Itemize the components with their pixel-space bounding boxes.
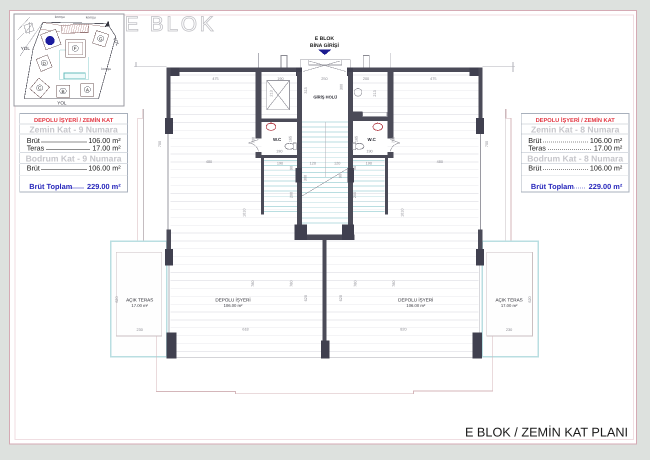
svg-text:17.00 m²: 17.00 m² (594, 144, 623, 153)
svg-text:Bodrum Kat - 8 Numara: Bodrum Kat - 8 Numara (527, 153, 623, 163)
svg-text:E BLOK / ZEMİN KAT PLANI: E BLOK / ZEMİN KAT PLANI (465, 426, 628, 440)
svg-text:250: 250 (321, 77, 327, 81)
svg-text:BİNA GİRİŞİ: BİNA GİRİŞİ (310, 42, 340, 49)
svg-text:165: 165 (288, 136, 292, 142)
svg-text:213: 213 (373, 90, 377, 96)
svg-text:106.00 m²: 106.00 m² (224, 303, 243, 308)
svg-text:AÇIK TERAS: AÇIK TERAS (495, 298, 522, 303)
svg-text:106.00 m²: 106.00 m² (88, 164, 121, 173)
svg-text:Zemin Kat - 9 Numara: Zemin Kat - 9 Numara (29, 124, 118, 134)
svg-text:E BLOK: E BLOK (125, 13, 216, 36)
svg-text:90: 90 (290, 166, 294, 170)
svg-text:230: 230 (506, 328, 512, 332)
svg-text:780: 780 (392, 281, 396, 287)
svg-text:165: 165 (355, 136, 359, 142)
svg-text:475: 475 (430, 77, 436, 81)
svg-text:190: 190 (366, 150, 372, 154)
svg-text:700: 700 (158, 141, 162, 147)
svg-text:120: 120 (310, 162, 316, 166)
svg-text:Brüt Toplam: Brüt Toplam (29, 182, 72, 191)
svg-text:G: G (99, 36, 103, 41)
svg-text:780: 780 (251, 281, 255, 287)
svg-text:120: 120 (334, 162, 340, 166)
svg-text:DEPOLU İŞYERİ: DEPOLU İŞYERİ (398, 298, 433, 303)
svg-text:Zemin Kat - 8 Numara: Zemin Kat - 8 Numara (531, 124, 620, 134)
svg-text:700: 700 (391, 137, 395, 143)
svg-text:106.00 m²: 106.00 m² (590, 164, 623, 173)
svg-text:1010: 1010 (401, 208, 405, 216)
svg-text:190: 190 (277, 77, 283, 81)
svg-text:1010: 1010 (242, 208, 246, 216)
svg-text:200: 200 (290, 192, 294, 198)
svg-text:E BLOK: E BLOK (315, 36, 335, 42)
svg-text:213: 213 (270, 90, 274, 96)
svg-text:200: 200 (363, 77, 369, 81)
svg-text:Teras: Teras (528, 144, 546, 153)
svg-text:DEPOLU İŞYERİ / ZEMİN KAT: DEPOLU İŞYERİ / ZEMİN KAT (536, 117, 616, 124)
svg-text:190: 190 (276, 150, 282, 154)
svg-text:480: 480 (206, 160, 212, 164)
svg-text:230: 230 (137, 328, 143, 332)
svg-text:F: F (74, 46, 77, 51)
svg-text:17.00 m²: 17.00 m² (131, 303, 148, 308)
svg-text:620: 620 (528, 296, 532, 302)
svg-text:313: 313 (304, 87, 308, 93)
svg-text:780: 780 (354, 281, 358, 287)
svg-text:Brüt: Brüt (27, 164, 40, 173)
svg-text:komşu: komşu (55, 15, 65, 19)
svg-text:300: 300 (340, 84, 344, 90)
svg-text:229.00 m²: 229.00 m² (87, 182, 121, 191)
svg-text:90: 90 (353, 166, 357, 170)
svg-text:Teras: Teras (27, 144, 45, 153)
svg-text:480: 480 (437, 160, 443, 164)
svg-text:200: 200 (353, 192, 357, 198)
svg-text:komşu: komşu (86, 16, 96, 20)
svg-text:AÇIK TERAS: AÇIK TERAS (126, 298, 153, 303)
svg-text:90: 90 (339, 174, 343, 178)
svg-text:GİRİŞ HOLÜ: GİRİŞ HOLÜ (313, 95, 337, 100)
svg-text:Bodrum Kat - 9 Numara: Bodrum Kat - 9 Numara (26, 153, 122, 163)
svg-text:17.00 m²: 17.00 m² (501, 303, 518, 308)
svg-text:17.00 m²: 17.00 m² (92, 144, 121, 153)
svg-text:620: 620 (115, 296, 119, 302)
svg-text:DEPOLU İŞYERİ: DEPOLU İŞYERİ (215, 298, 250, 303)
svg-text:300: 300 (304, 175, 308, 181)
svg-text:YOL: YOL (57, 101, 67, 106)
svg-text:Brüt Toplam: Brüt Toplam (531, 182, 574, 191)
svg-text:475: 475 (212, 77, 218, 81)
svg-text:YOL: YOL (21, 46, 31, 51)
svg-text:Brüt: Brüt (528, 164, 541, 173)
svg-text:620: 620 (339, 295, 343, 301)
svg-text:190: 190 (277, 162, 283, 166)
svg-text:618: 618 (242, 328, 248, 332)
svg-text:780: 780 (289, 281, 293, 287)
svg-text:W.C: W.C (273, 137, 282, 142)
svg-text:700: 700 (485, 141, 489, 147)
svg-text:DEPOLU İŞYERİ / ZEMİN KAT: DEPOLU İŞYERİ / ZEMİN KAT (34, 117, 114, 124)
svg-text:700: 700 (252, 137, 256, 143)
svg-text:106.00 m²: 106.00 m² (406, 303, 425, 308)
svg-text:190: 190 (366, 162, 372, 166)
svg-text:komşu: komşu (101, 67, 111, 71)
svg-text:620: 620 (304, 295, 308, 301)
svg-text:229.00 m²: 229.00 m² (589, 182, 623, 191)
svg-text:820: 820 (400, 328, 406, 332)
svg-text:B: B (61, 89, 64, 94)
svg-text:W.C: W.C (368, 137, 377, 142)
